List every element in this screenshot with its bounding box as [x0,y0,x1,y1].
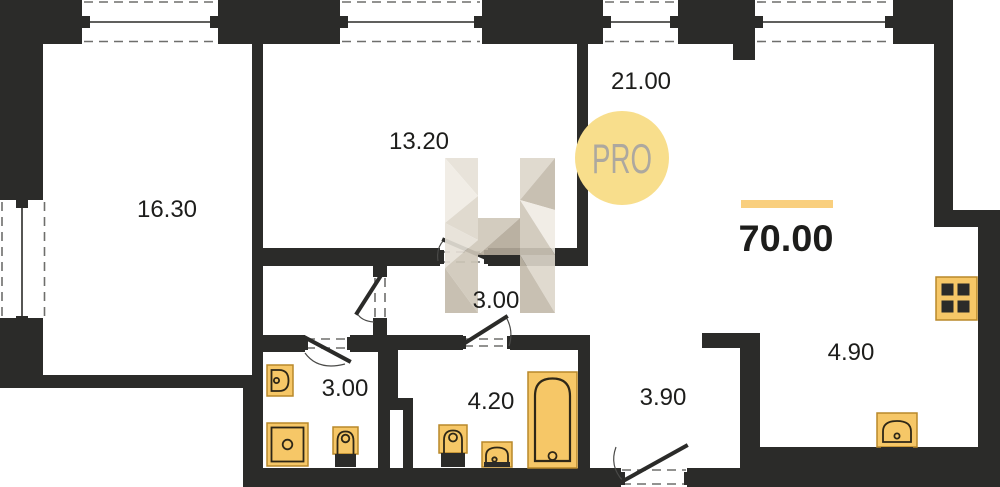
window-top-4 [755,0,893,44]
shower-tray [267,423,308,466]
window-left [0,199,47,325]
window-top-3 [603,0,678,44]
area-label-hallway: 3.00 [473,287,520,314]
area-label-room-1320: 13.20 [389,128,449,155]
area-label-bathroom-large: 4.20 [468,388,515,415]
door-bathroom-small [301,335,354,366]
window-top-1 [82,0,218,44]
area-label-kitchen-niche: 4.90 [828,339,875,366]
total-area-value: 70.00 [739,218,834,259]
area-label-room-1630: 16.30 [137,196,197,223]
floorplan-canvas: PRO 16.30 13.20 21.00 3.00 3.00 4.20 3.9… [0,0,1000,487]
area-label-room-2100: 21.00 [611,68,671,95]
accent-underline [741,200,833,208]
kitchen-sink [877,413,917,457]
door-entrance [614,446,693,487]
area-label-corridor: 3.90 [640,384,687,411]
door-bathroom-large [459,317,514,350]
wall-pier [733,44,755,60]
pro-badge: PRO [575,111,669,205]
washbasin-bathroom-large [482,442,512,467]
bathtub [528,372,577,468]
door-vestibule [357,277,385,322]
toilet-bathroom-small [333,427,358,467]
stove-icon [936,277,977,320]
area-label-bathroom-small: 3.00 [322,375,369,402]
window-top-2 [340,0,482,44]
total-area-block: 70.00 [739,200,834,259]
toilet-bathroom-large [439,425,467,467]
pro-badge-label: PRO [592,135,652,182]
floorplan-drawing: PRO 16.30 13.20 21.00 3.00 3.00 4.20 3.9… [0,0,1000,487]
sink-bathroom-small [267,365,293,396]
